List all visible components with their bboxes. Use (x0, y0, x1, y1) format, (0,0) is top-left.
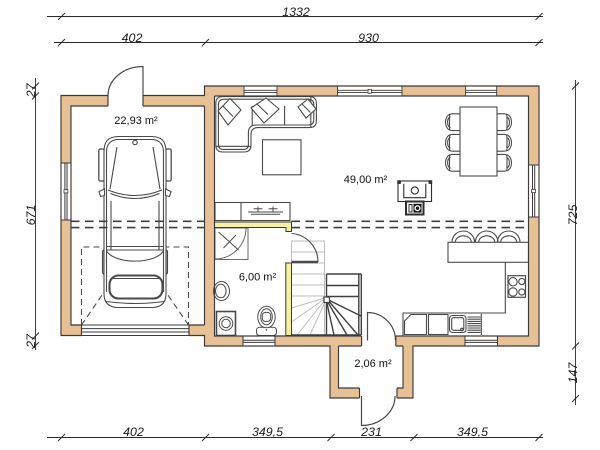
svg-text:147: 147 (566, 362, 580, 384)
svg-text:1332: 1332 (282, 5, 310, 19)
svg-text:231: 231 (360, 425, 382, 439)
svg-text:725: 725 (566, 205, 580, 226)
svg-text:6,00 m²: 6,00 m² (239, 272, 277, 284)
svg-text:402: 402 (122, 31, 143, 45)
svg-text:402: 402 (123, 425, 144, 439)
svg-text:49,00 m²: 49,00 m² (344, 174, 388, 186)
svg-text:671: 671 (24, 205, 38, 226)
svg-text:930: 930 (358, 31, 379, 45)
svg-text:2,06 m²: 2,06 m² (354, 358, 392, 370)
svg-text:27: 27 (24, 82, 38, 98)
svg-text:22,93 m²: 22,93 m² (114, 115, 158, 127)
svg-text:349,5: 349,5 (457, 425, 488, 439)
svg-text:349,5: 349,5 (252, 425, 283, 439)
svg-text:27: 27 (24, 333, 38, 349)
